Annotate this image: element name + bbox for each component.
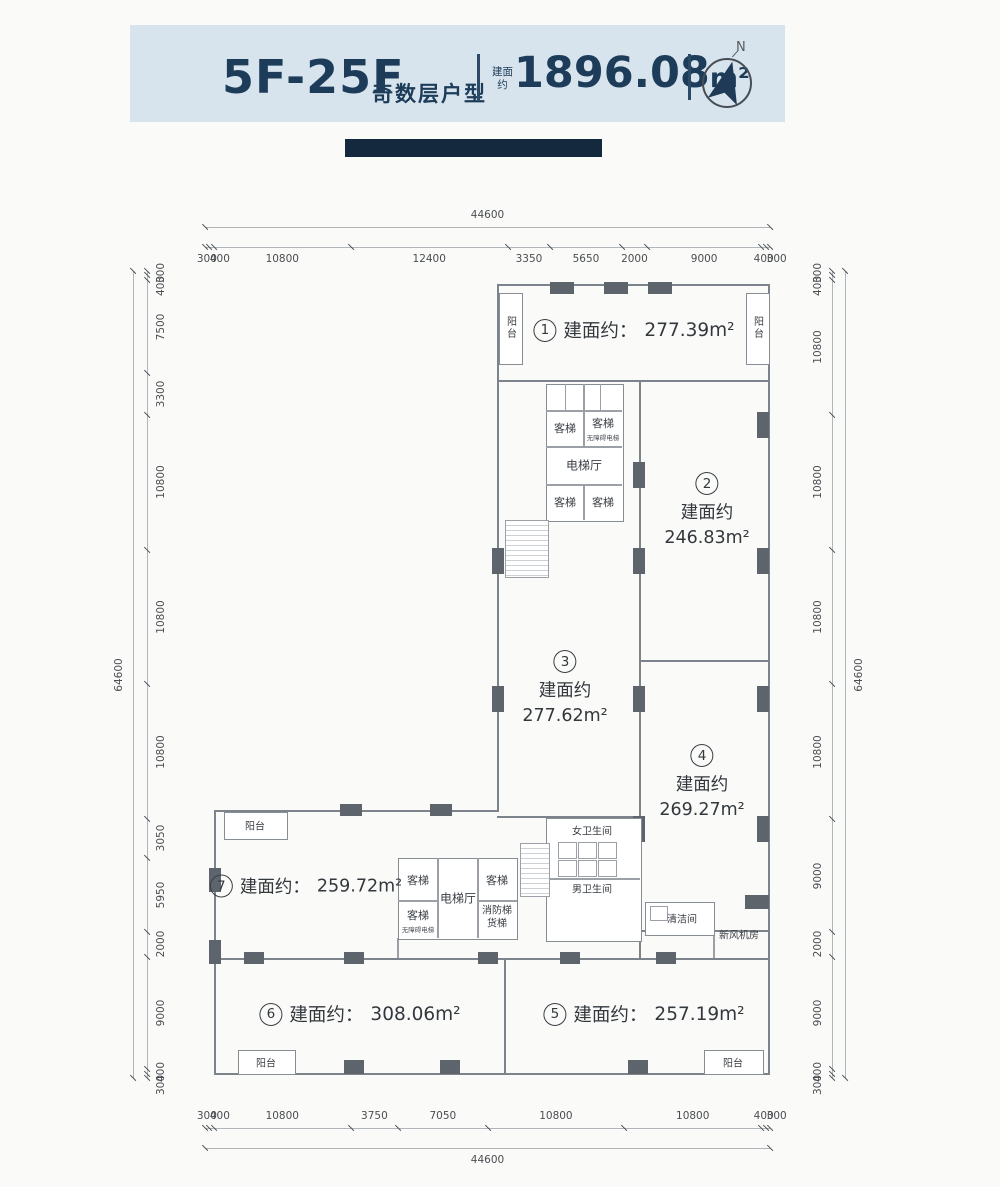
unit-5-label: 5建面约：257.19m²	[543, 1001, 744, 1027]
unit-4-label: 4 建面约 269.27m²	[659, 744, 744, 820]
column	[633, 548, 645, 574]
wall	[583, 484, 585, 520]
wall	[497, 284, 770, 286]
column	[492, 548, 504, 574]
stairwell	[505, 520, 549, 578]
sink	[650, 906, 668, 921]
wall	[398, 900, 438, 902]
column	[633, 686, 645, 712]
lift-hall-label: 电梯厅	[440, 890, 476, 907]
column	[209, 940, 221, 964]
toilet-stall	[558, 842, 577, 859]
header-divider	[477, 54, 480, 100]
wall	[600, 384, 601, 410]
unit-number: 2	[695, 472, 718, 495]
column	[633, 462, 645, 488]
wall	[397, 938, 399, 958]
balcony-label: 阳台	[503, 316, 518, 340]
unit-3-label: 3 建面约 277.62m²	[522, 650, 607, 726]
toilet-stall	[558, 860, 577, 877]
column	[604, 282, 628, 294]
column	[550, 282, 574, 294]
unit-number: 6	[259, 1003, 282, 1026]
column	[340, 804, 362, 816]
unit-number: 1	[533, 319, 556, 342]
passenger-lift-label: 客梯	[592, 415, 614, 431]
floor-type-label: 奇数层户型	[372, 78, 487, 108]
wall	[546, 446, 622, 448]
column	[656, 952, 676, 964]
mens-toilet-label: 男卫生间	[572, 881, 612, 896]
toilet-stall	[578, 842, 597, 859]
balcony-label: 阳台	[723, 1055, 743, 1070]
wall	[565, 384, 566, 410]
fire-freight-lift-label: 消防梯 货梯	[482, 906, 512, 931]
womens-toilet-label: 女卫生间	[572, 823, 612, 838]
passenger-lift-label: 客梯	[554, 494, 576, 510]
passenger-lift-label: 客梯	[407, 872, 429, 888]
unit-number: 3	[553, 650, 576, 673]
balcony-label: 阳台	[256, 1055, 276, 1070]
column	[344, 1060, 364, 1074]
cleaning-room-label: 清洁间	[667, 911, 697, 926]
area-note: 建面 约	[492, 66, 513, 91]
column	[492, 686, 504, 712]
fresh-air-room-label: 新风机房	[719, 927, 759, 942]
lift-hall-label: 电梯厅	[566, 457, 602, 474]
unit-1-label: 1建面约：277.39m²	[533, 317, 734, 343]
compass-icon: N	[700, 40, 764, 120]
column	[344, 952, 364, 964]
column	[757, 686, 769, 712]
wall	[477, 858, 479, 938]
column	[560, 952, 580, 964]
toilet-stall	[578, 860, 597, 877]
unit-number: 7	[210, 875, 233, 898]
column	[440, 1060, 460, 1074]
passenger-lift-label: 客梯	[407, 907, 429, 923]
wall	[215, 1073, 770, 1075]
balcony-label: 阳台	[245, 818, 265, 833]
wall	[768, 284, 770, 1075]
unit-7-label: 7建面约：259.72m²	[210, 874, 402, 899]
wall	[497, 380, 770, 382]
accessible-lift-label: 无障碍电梯	[402, 924, 435, 934]
wall	[477, 900, 517, 902]
column	[757, 548, 769, 574]
passenger-lift-label: 客梯	[554, 420, 576, 436]
wall	[639, 660, 770, 662]
passenger-lift-label: 客梯	[486, 872, 508, 888]
column	[628, 1060, 648, 1074]
toilet-stall	[598, 860, 617, 877]
column	[757, 816, 769, 842]
unit-6-label: 6建面约：308.06m²	[259, 1001, 460, 1027]
passenger-lift-label: 客梯	[592, 494, 614, 510]
unit-number: 4	[690, 744, 713, 767]
column	[244, 952, 264, 964]
column	[648, 282, 672, 294]
header-accent-bar	[345, 139, 602, 157]
accessible-lift-label: 无障碍电梯	[587, 432, 620, 442]
compass-north-label: N	[736, 40, 746, 55]
balcony-label: 阳台	[750, 316, 765, 340]
unit-number: 5	[543, 1003, 566, 1026]
column	[757, 412, 769, 438]
wall	[437, 858, 439, 938]
unit-2-label: 2 建面约 246.83m²	[664, 472, 749, 548]
wall	[504, 958, 506, 1075]
column	[430, 804, 452, 816]
column	[745, 895, 769, 909]
wall	[546, 878, 640, 880]
column	[478, 952, 498, 964]
wall	[583, 384, 585, 446]
header-divider	[688, 54, 691, 100]
floor-plan-page: 5F-25F 奇数层户型 建面 约 1896.08m² N 44600 3004…	[0, 0, 1000, 1187]
toilet-stall	[598, 842, 617, 859]
stairwell	[520, 843, 550, 897]
